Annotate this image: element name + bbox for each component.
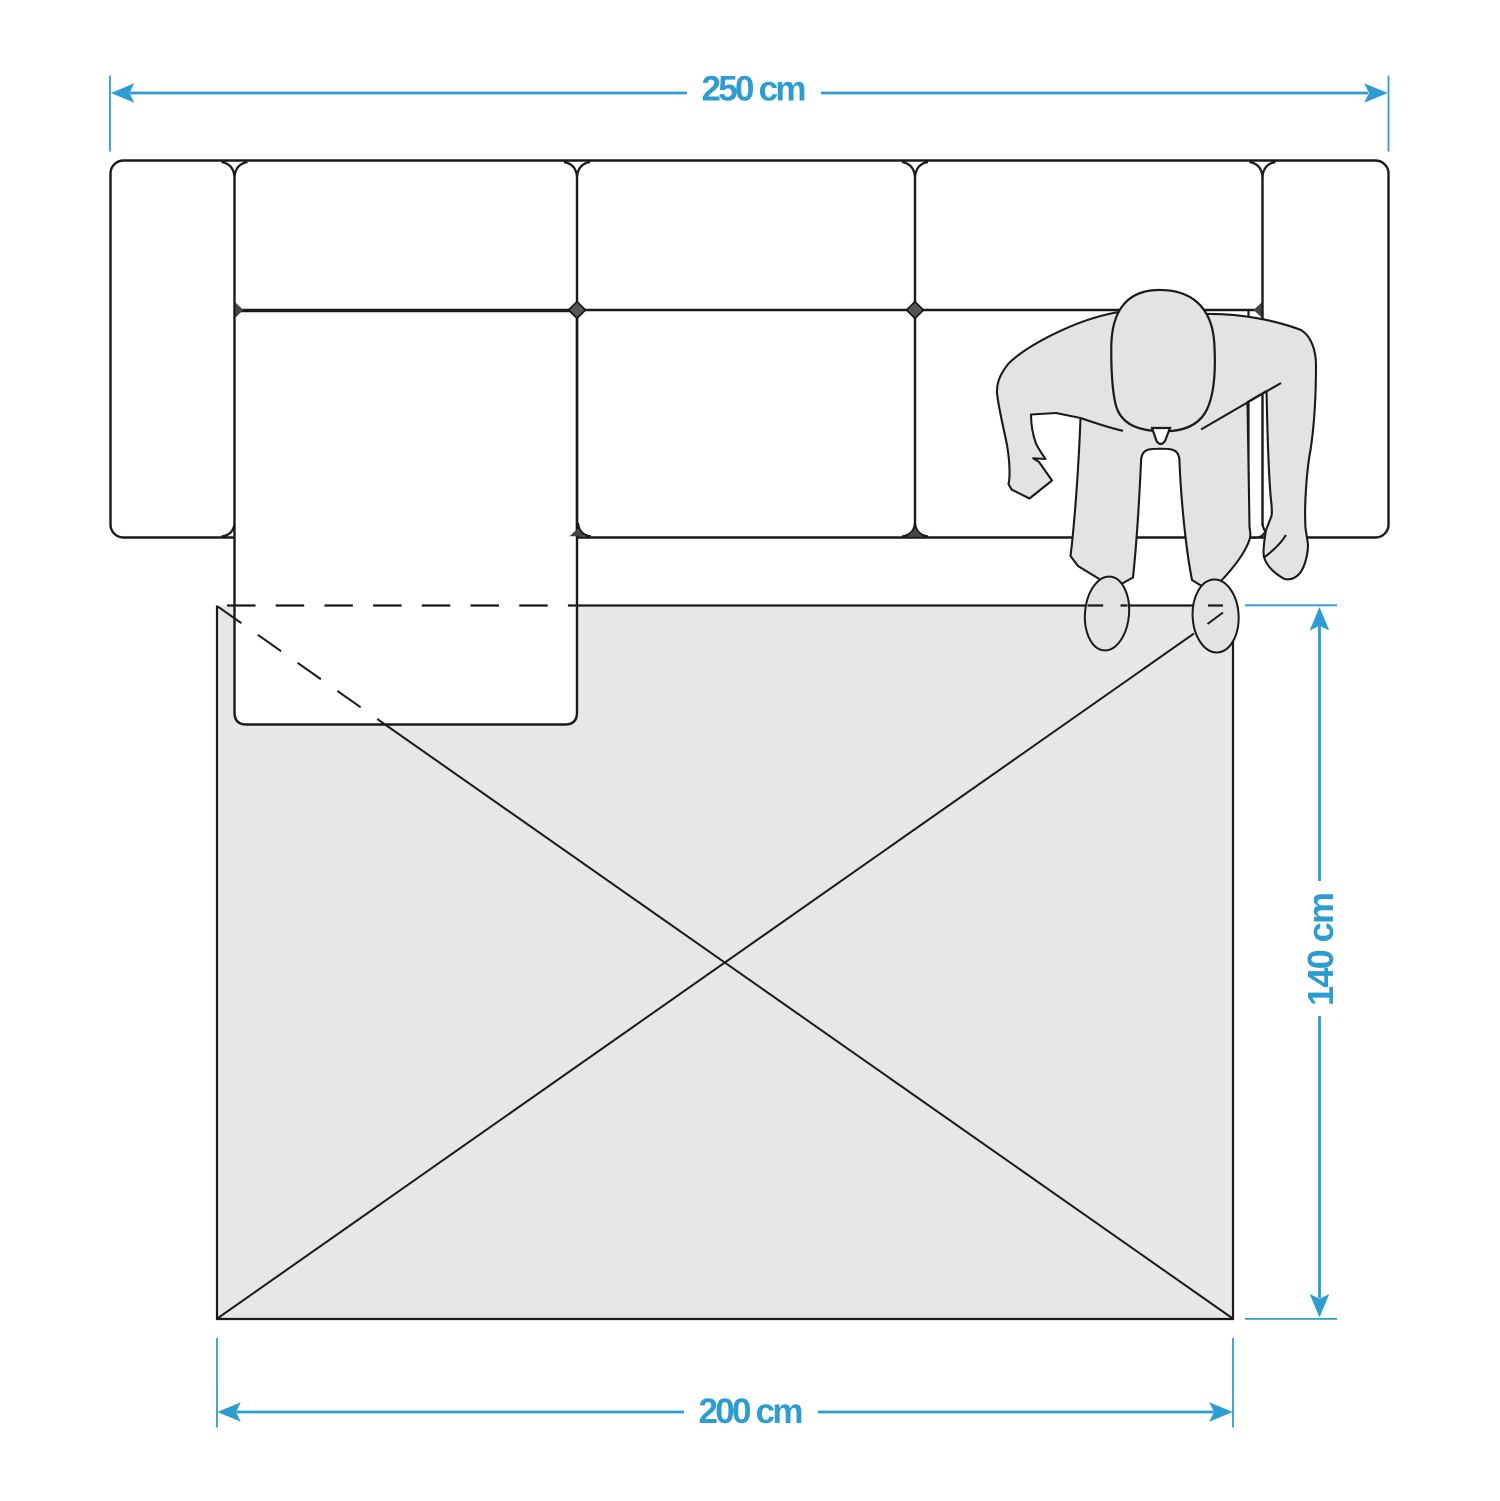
svg-text:250 cm: 250 cm bbox=[702, 70, 807, 109]
svg-text:140 cm: 140 cm bbox=[1300, 892, 1341, 1006]
svg-text:200 cm: 200 cm bbox=[699, 1392, 804, 1431]
